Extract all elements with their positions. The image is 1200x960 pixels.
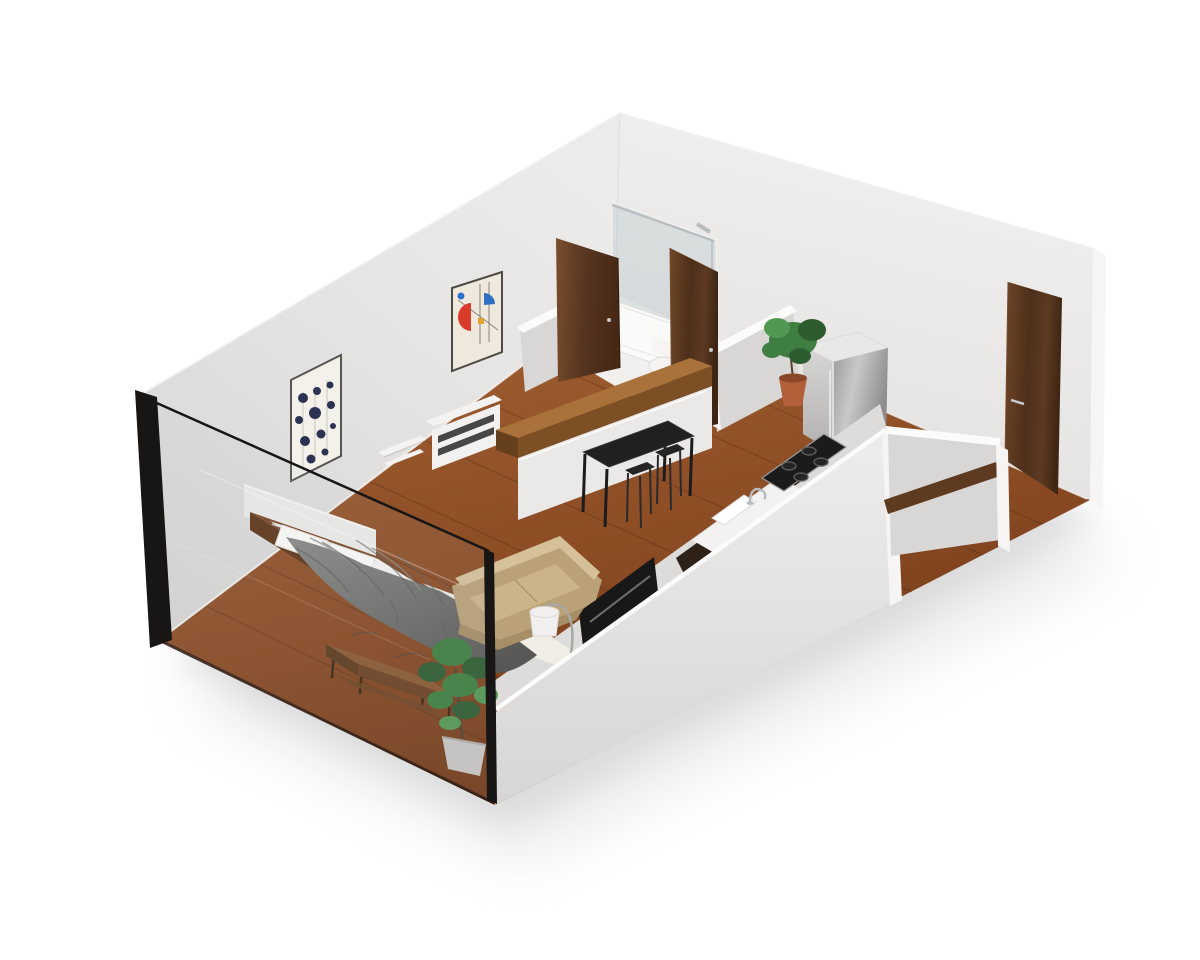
lamp-shade-top — [530, 607, 559, 618]
plant-small-pot-rim — [779, 374, 807, 383]
artwork-abstract-blue-dot — [458, 293, 465, 300]
entry-door — [1005, 282, 1062, 495]
bath-door-left-handle — [607, 318, 611, 322]
bathroom-door-left — [556, 238, 620, 382]
bath-door-right-handle — [709, 348, 713, 352]
plant-small-foliage — [789, 348, 811, 364]
plant-small-foliage — [764, 318, 790, 338]
nook-end-cap — [996, 444, 1010, 552]
bath-door-left-panel — [556, 238, 620, 382]
artwork-abstract-yellow-square — [478, 318, 484, 324]
entry-door-panel — [1005, 282, 1062, 495]
plant-small-foliage — [762, 342, 782, 358]
floorplan-canvas — [0, 0, 1200, 960]
faucet-base — [747, 501, 754, 505]
plant-small-foliage — [798, 319, 826, 341]
